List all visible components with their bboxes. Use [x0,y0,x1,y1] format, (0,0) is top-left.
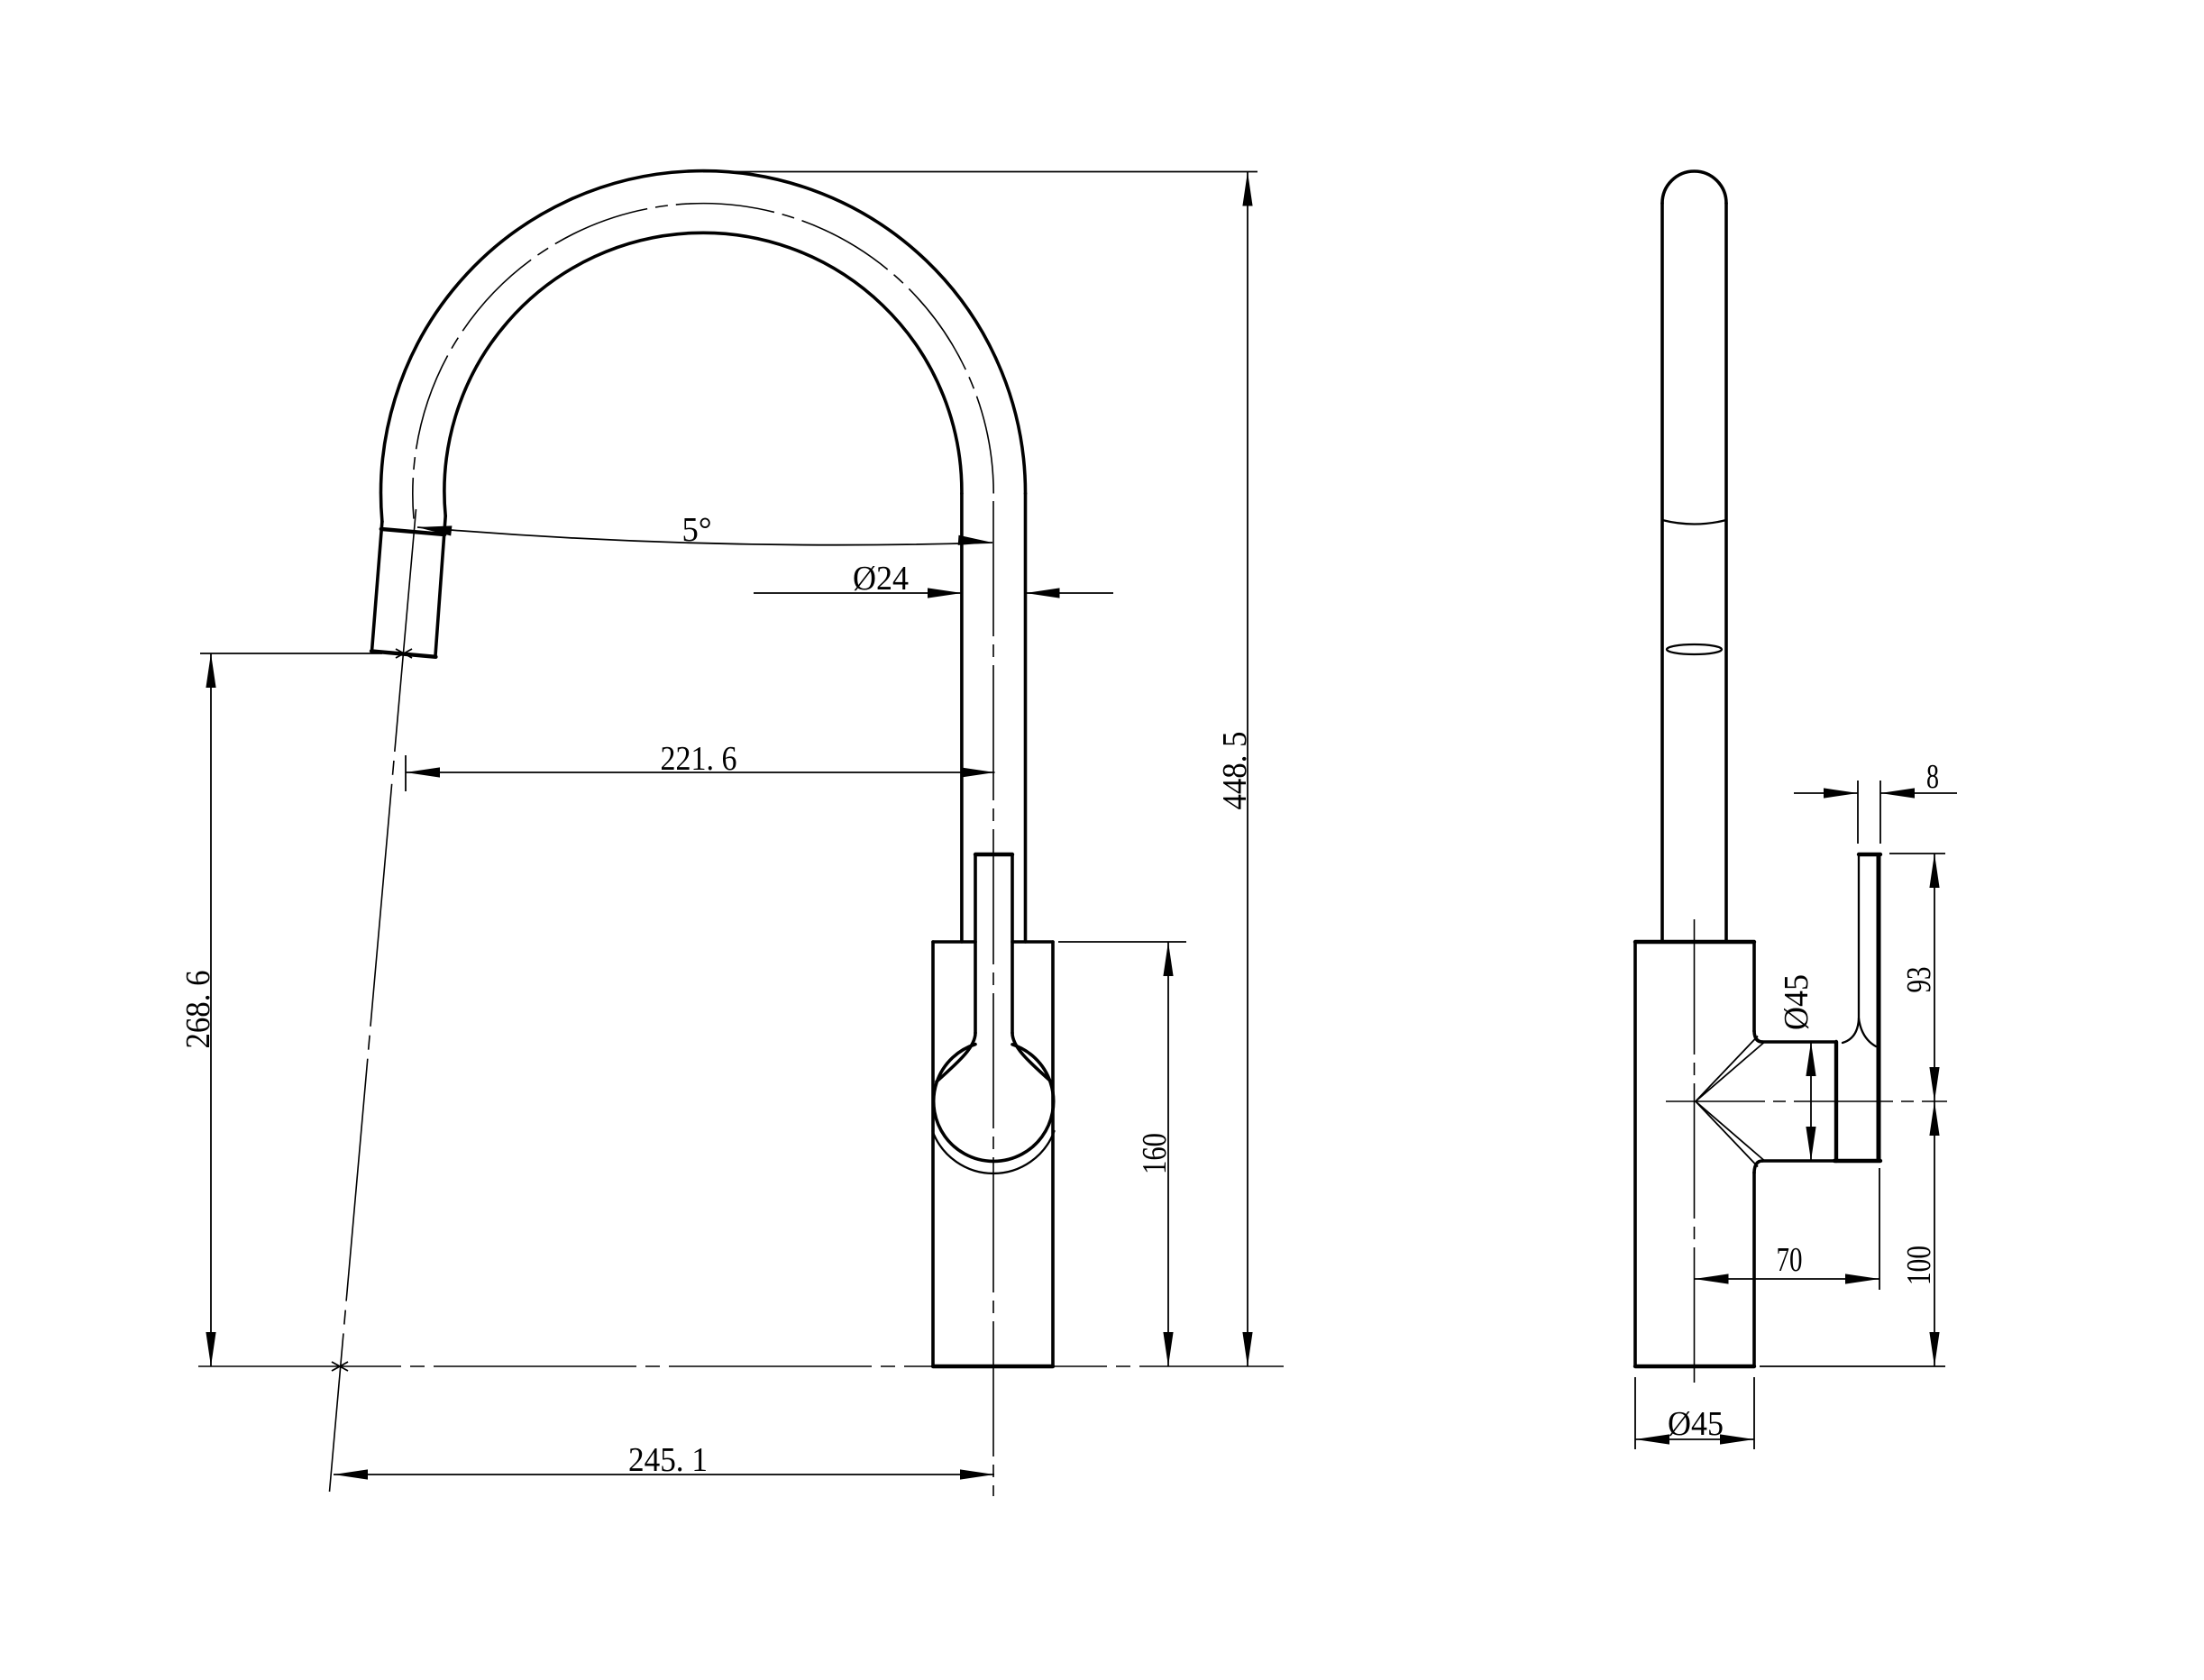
svg-text:245. 1: 245. 1 [628,1441,708,1479]
svg-text:93: 93 [1900,967,1938,993]
svg-text:Ø24: Ø24 [853,560,909,598]
svg-text:Ø45: Ø45 [1778,974,1815,1030]
svg-text:268. 6: 268. 6 [179,971,217,1049]
svg-text:Ø45: Ø45 [1668,1405,1724,1443]
svg-text:160: 160 [1136,1133,1174,1174]
svg-text:221. 6: 221. 6 [661,740,737,778]
svg-text:70: 70 [1777,1241,1803,1279]
svg-text:8: 8 [1926,758,1939,796]
svg-text:448. 5: 448. 5 [1216,732,1254,810]
svg-text:100: 100 [1900,1246,1938,1285]
svg-text:5°: 5° [682,511,712,549]
